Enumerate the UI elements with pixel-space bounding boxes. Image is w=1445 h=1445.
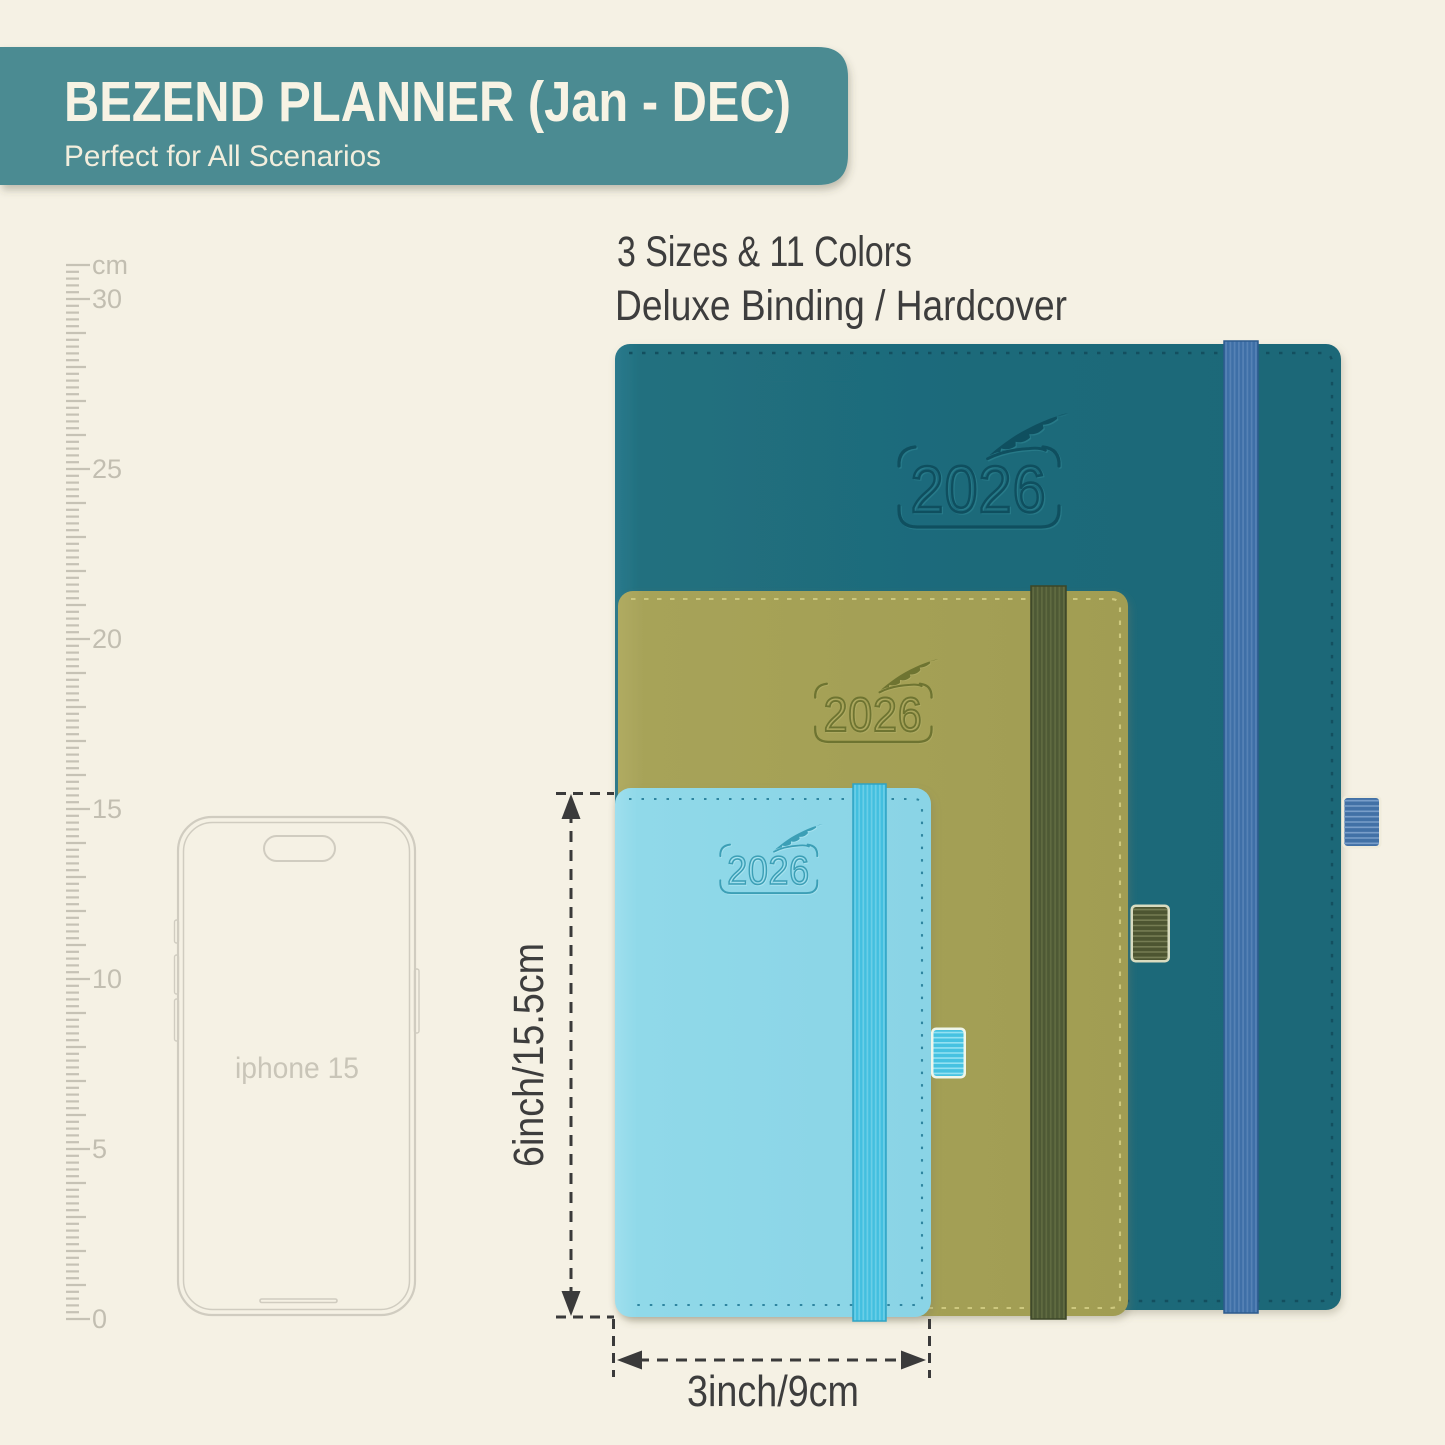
svg-text:0: 0 — [92, 1304, 107, 1334]
svg-text:BEZEND PLANNER (Jan - DEC): BEZEND PLANNER (Jan - DEC) — [64, 70, 791, 134]
svg-text:3 Sizes & 11 Colors: 3 Sizes & 11 Colors — [617, 228, 912, 276]
svg-text:Perfect for All Scenarios: Perfect for All Scenarios — [64, 140, 381, 173]
svg-text:Deluxe Binding / Hardcover: Deluxe Binding / Hardcover — [615, 282, 1067, 330]
svg-text:30: 30 — [92, 284, 122, 314]
svg-text:20: 20 — [92, 624, 122, 654]
svg-text:3inch/9cm: 3inch/9cm — [687, 1367, 859, 1416]
svg-text:5: 5 — [92, 1134, 107, 1164]
svg-text:iphone 15: iphone 15 — [235, 1052, 359, 1085]
svg-text:cm: cm — [92, 250, 128, 280]
svg-text:10: 10 — [92, 964, 122, 994]
svg-text:15: 15 — [92, 794, 122, 824]
svg-text:25: 25 — [92, 454, 122, 484]
svg-text:6inch/15.5cm: 6inch/15.5cm — [505, 943, 553, 1167]
